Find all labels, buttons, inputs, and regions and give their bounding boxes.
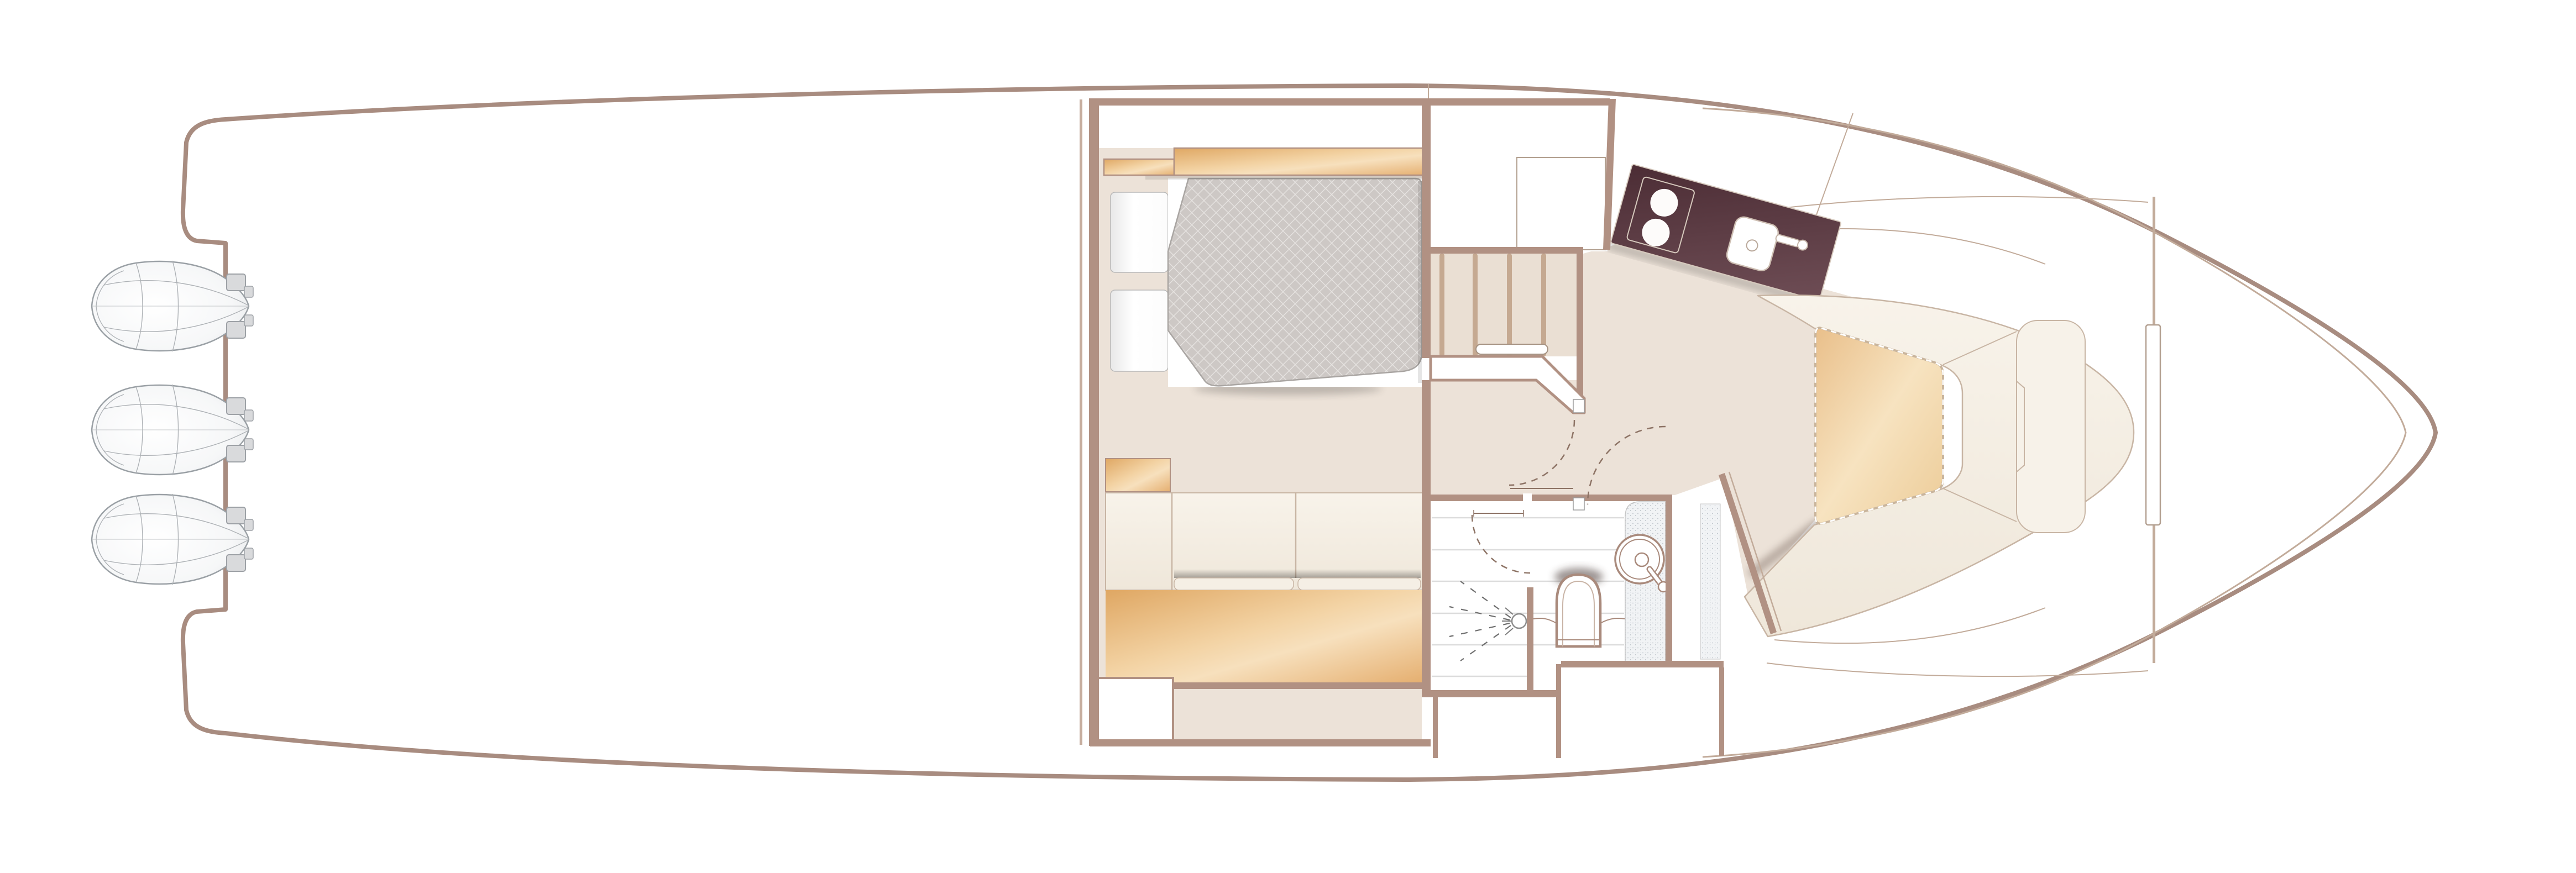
head-right-wall [1666, 495, 1672, 666]
engine-3 [92, 494, 253, 585]
cabin-bottom-wall [1090, 739, 1431, 746]
head-top-wall [1422, 495, 1672, 501]
engine-1 [92, 261, 253, 351]
basin-faucet [1635, 553, 1648, 566]
bed-quilt [1168, 178, 1422, 386]
lower-wall [1561, 661, 1724, 667]
headboard-wood-main [1174, 148, 1428, 175]
cabin-top-wall [1099, 98, 1610, 106]
floorplan-canvas [0, 0, 2576, 873]
aft-bulkhead [1089, 98, 1099, 746]
headboard-wood-left [1104, 159, 1174, 175]
stair-tread-edge [1439, 254, 1444, 356]
door-jamb-3 [1523, 493, 1532, 502]
engine-group [92, 261, 253, 585]
pillow-1 [1111, 192, 1168, 272]
sofa-seat-lip-2 [1298, 578, 1421, 590]
stair-tread-edge [1541, 254, 1546, 356]
underdeck-wall-1 [1556, 664, 1561, 758]
door-jamb-2 [1573, 498, 1584, 510]
pillow-2 [1111, 290, 1168, 371]
head-bottom-wall [1422, 690, 1561, 697]
stairs-top-wall [1422, 247, 1583, 254]
underdeck-wall-2 [1433, 697, 1438, 758]
sofa-seat-lip-1 [1174, 578, 1294, 590]
nightstand-wood [1106, 459, 1170, 492]
aft-bulkhead-thin [1080, 99, 1082, 745]
cabin-wood-floor [1106, 590, 1423, 682]
engine-2 [92, 385, 253, 475]
cabin-head-shelf [1099, 106, 1422, 148]
shower-divider-wall [1527, 587, 1533, 693]
vanity-counter-2 [1700, 504, 1720, 659]
yacht-floorplan [0, 0, 2576, 873]
settee-backrest-panel [2017, 320, 2085, 533]
foredeck-hatch [2146, 325, 2160, 525]
stairs-floor [1431, 254, 1577, 356]
stair-handrail [1476, 344, 1548, 354]
stair-tread-edge [1473, 254, 1478, 356]
door-jamb-1 [1573, 399, 1584, 413]
stair-tread-edge [1507, 254, 1512, 356]
mid-wall-upper [1422, 106, 1431, 358]
underdeck-wall-3 [1719, 667, 1724, 756]
galley-cabinet [1517, 157, 1605, 250]
cabin-step-locker [1094, 678, 1173, 740]
mid-wall-lower [1422, 380, 1431, 693]
stairs-side-wall [1577, 254, 1583, 402]
